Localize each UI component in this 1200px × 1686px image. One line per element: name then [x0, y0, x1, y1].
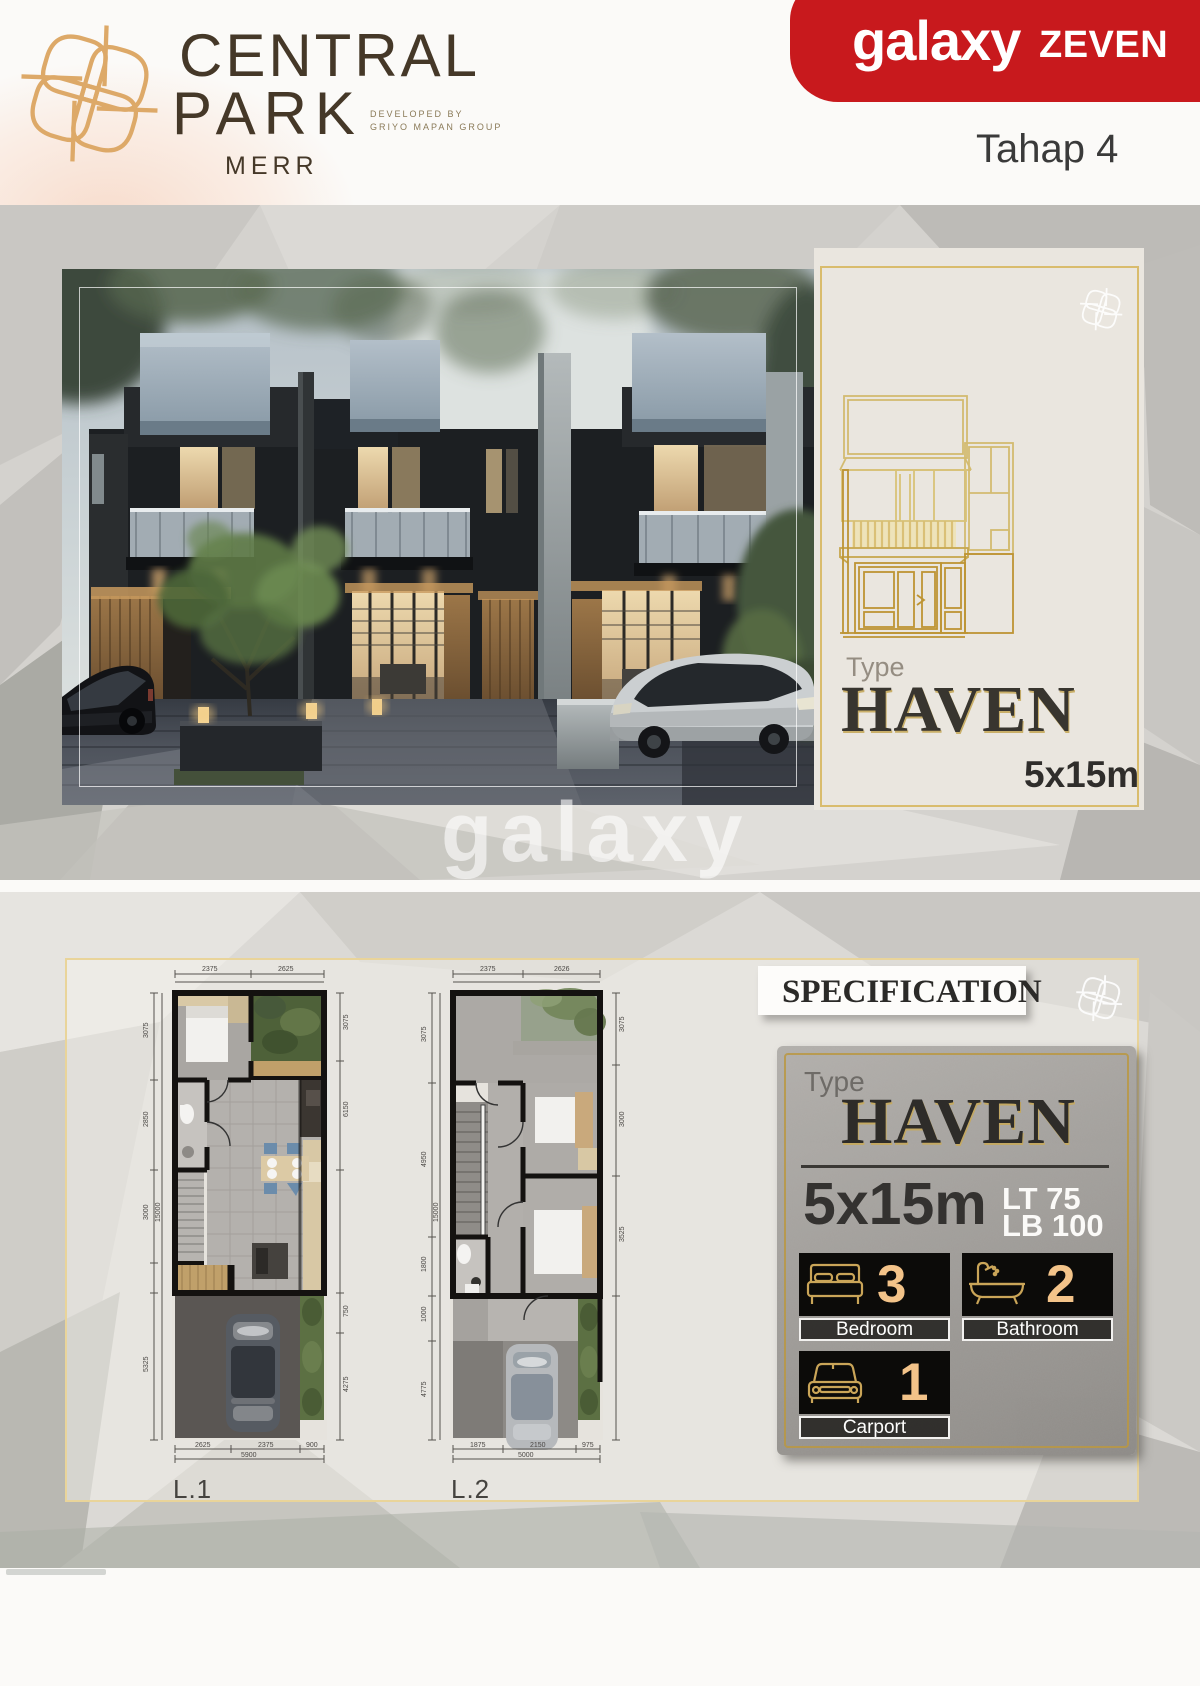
svg-text:L.2: L.2 [451, 1474, 490, 1502]
svg-text:3525: 3525 [619, 1226, 626, 1242]
svg-text:3000: 3000 [619, 1111, 626, 1127]
svg-text:5000: 5000 [518, 1452, 534, 1459]
svg-text:2850: 2850 [143, 1111, 150, 1127]
svg-text:4275: 4275 [343, 1376, 350, 1392]
svg-text:2626: 2626 [554, 966, 570, 973]
svg-text:6150: 6150 [343, 1101, 350, 1117]
svg-text:975: 975 [582, 1442, 594, 1449]
svg-text:2150: 2150 [530, 1442, 546, 1449]
svg-text:5900: 5900 [241, 1452, 257, 1459]
svg-text:2625: 2625 [278, 966, 294, 973]
svg-text:1800: 1800 [421, 1256, 428, 1272]
svg-text:900: 900 [306, 1442, 318, 1449]
svg-text:750: 750 [343, 1305, 350, 1317]
svg-text:2625: 2625 [195, 1442, 211, 1449]
svg-text:4775: 4775 [421, 1381, 428, 1397]
svg-text:3075: 3075 [619, 1016, 626, 1032]
svg-text:L.1: L.1 [173, 1474, 212, 1502]
svg-text:15000: 15000 [433, 1202, 440, 1222]
svg-text:1875: 1875 [470, 1442, 486, 1449]
svg-text:3075: 3075 [343, 1014, 350, 1030]
svg-text:1000: 1000 [421, 1306, 428, 1322]
svg-text:15000: 15000 [155, 1202, 162, 1222]
svg-text:3000: 3000 [143, 1204, 150, 1220]
svg-text:2375: 2375 [480, 966, 496, 973]
svg-text:2375: 2375 [258, 1442, 274, 1449]
svg-text:4950: 4950 [421, 1151, 428, 1167]
svg-text:5325: 5325 [143, 1356, 150, 1372]
svg-text:3075: 3075 [143, 1022, 150, 1038]
svg-text:3075: 3075 [421, 1026, 428, 1042]
svg-text:2375: 2375 [202, 966, 218, 973]
